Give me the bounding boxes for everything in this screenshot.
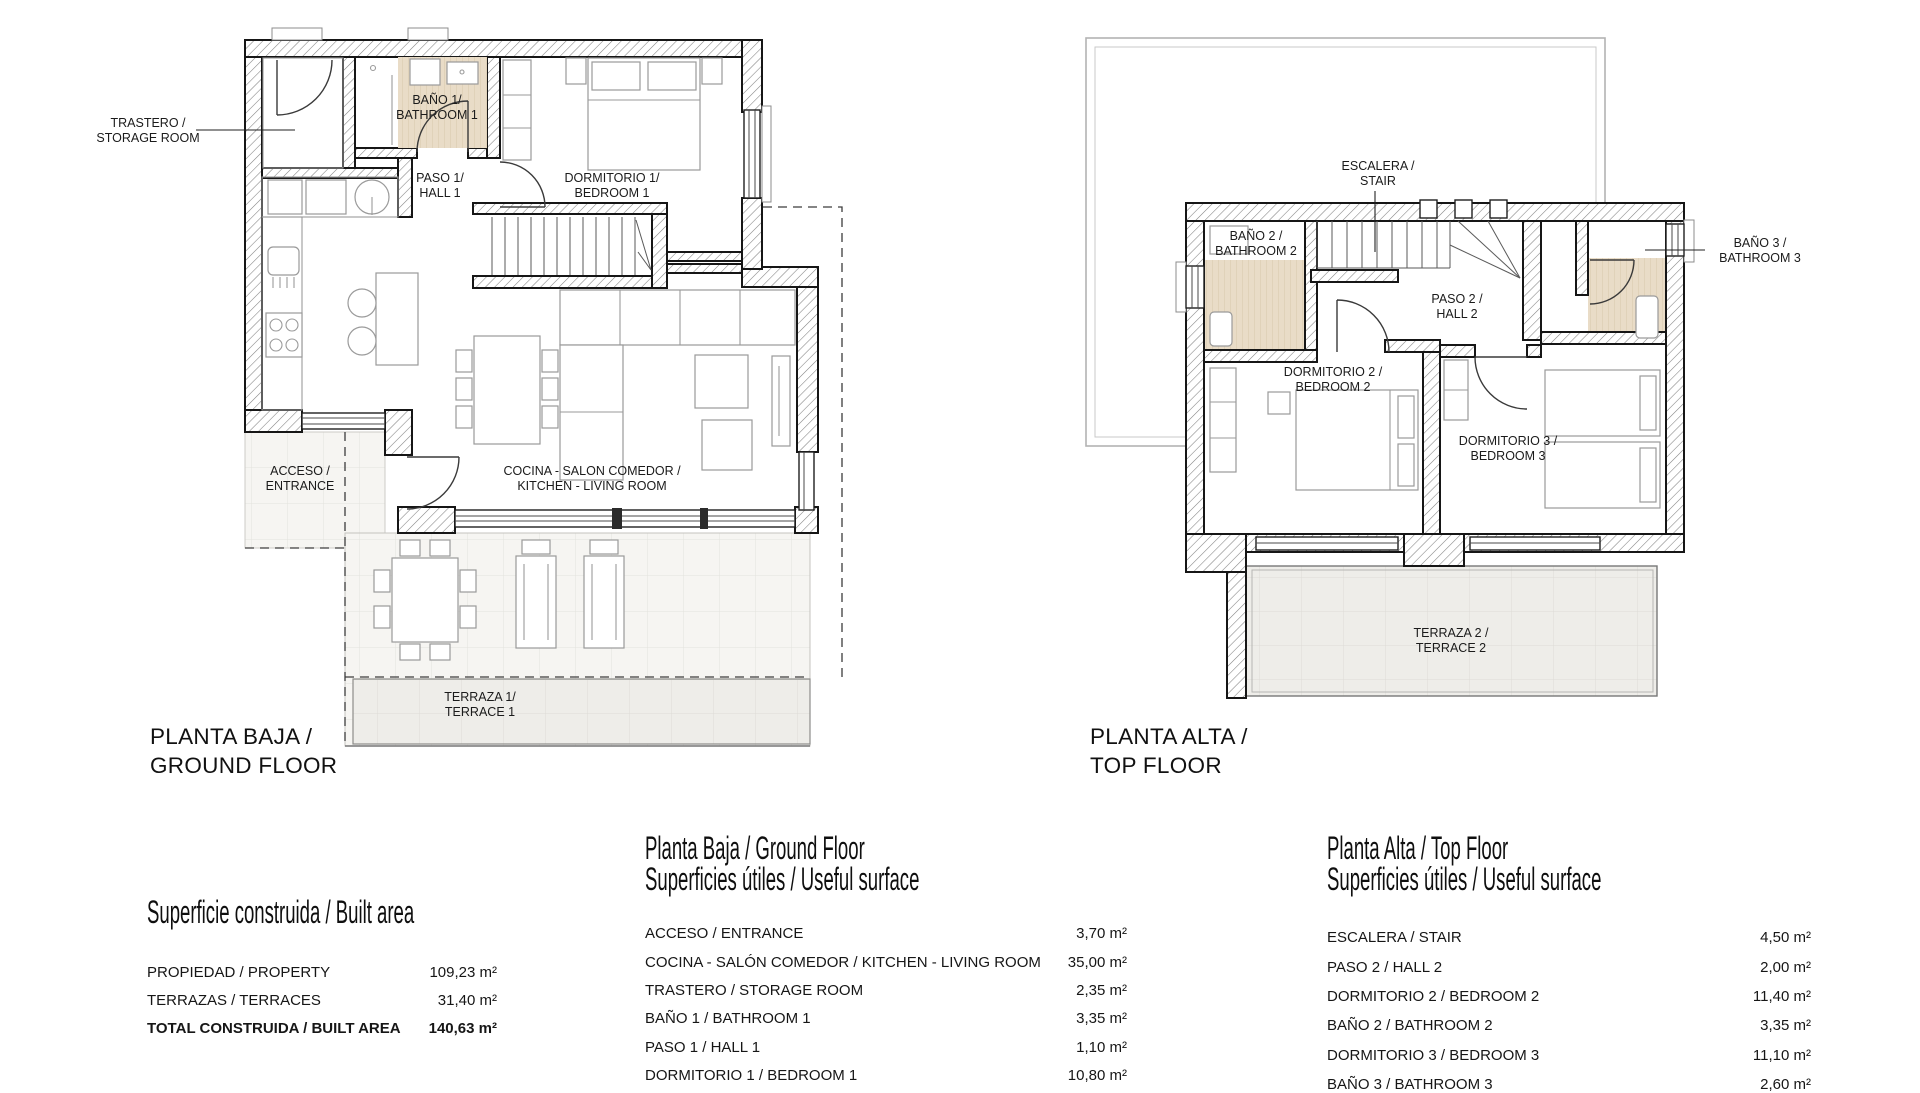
- bedroom3-label2: BEDROOM 3: [1470, 449, 1545, 463]
- table-row: DORMITORIO 1 / BEDROOM 1 10,80 m²: [645, 1067, 1127, 1084]
- stair-label: ESCALERA /: [1342, 159, 1415, 173]
- top-table-title2: Superficies útiles / Useful surface: [1327, 864, 1608, 895]
- ground-floor-title-line2: GROUND FLOOR: [150, 752, 337, 781]
- row-label: TRASTERO / STORAGE ROOM: [645, 982, 863, 999]
- row-value: 11,10 m²: [1753, 1047, 1811, 1064]
- table-row: ESCALERA / STAIR 4,50 m²: [1327, 929, 1811, 946]
- table-row: TERRAZAS / TERRACES 31,40 m²: [147, 992, 497, 1009]
- terrace2-label: TERRAZA 2 /: [1413, 626, 1489, 640]
- row-value: 3,70 m²: [1076, 925, 1127, 942]
- table-row: BAÑO 2 / BATHROOM 2 3,35 m²: [1327, 1017, 1811, 1034]
- row-value: 10,80 m²: [1068, 1067, 1127, 1084]
- top-table-title1: Planta Alta / Top Floor: [1327, 833, 1608, 864]
- row-label: DORMITORIO 3 / BEDROOM 3: [1327, 1047, 1539, 1064]
- row-label: BAÑO 1 / BATHROOM 1: [645, 1010, 811, 1027]
- terrace1-label: TERRAZA 1/: [444, 690, 516, 704]
- table-row: TRASTERO / STORAGE ROOM 2,35 m²: [645, 982, 1127, 999]
- bathroom1-label2: BATHROOM 1: [396, 108, 478, 122]
- row-value: 2,60 m²: [1760, 1076, 1811, 1093]
- terrace1-label2: TERRACE 1: [445, 705, 515, 719]
- bedroom1-label2: BEDROOM 1: [574, 186, 649, 200]
- hall1-label: PASO 1/: [416, 171, 464, 185]
- row-value: 35,00 m²: [1068, 954, 1127, 971]
- stair-label2: STAIR: [1360, 174, 1396, 188]
- hall2-label: PASO 2 /: [1431, 292, 1483, 306]
- row-value: 2,00 m²: [1760, 959, 1811, 976]
- trastero-label: TRASTERO /: [110, 116, 186, 130]
- ground-floor-plan: TRASTERO / STORAGE ROOM BAÑO 1/ BATHROOM…: [96, 28, 842, 747]
- row-label: TERRAZAS / TERRACES: [147, 992, 321, 1009]
- bathroom3-label: BAÑO 3 /: [1734, 236, 1787, 250]
- bedroom2-label2: BEDROOM 2: [1295, 380, 1370, 394]
- entrance-label2: ENTRANCE: [266, 479, 335, 493]
- ground-floor-title: PLANTA BAJA / GROUND FLOOR: [150, 723, 337, 780]
- trastero-label2: STORAGE ROOM: [96, 131, 199, 145]
- table-row: DORMITORIO 2 / BEDROOM 2 11,40 m²: [1327, 988, 1811, 1005]
- table-row: TOTAL CONSTRUIDA / BUILT AREA 140,63 m²: [147, 1020, 497, 1037]
- entrance-label: ACCESO /: [270, 464, 330, 478]
- row-value: 109,23 m²: [429, 964, 497, 981]
- row-label: DORMITORIO 2 / BEDROOM 2: [1327, 988, 1539, 1005]
- row-value: 11,40 m²: [1753, 988, 1811, 1005]
- top-floor-title: PLANTA ALTA / TOP FLOOR: [1090, 723, 1248, 780]
- top-floor-plan: ESCALERA / STAIR BAÑO 2 / BATHROOM 2 BAÑ…: [1086, 38, 1801, 698]
- hall1-label2: HALL 1: [419, 186, 460, 200]
- row-label: ACCESO / ENTRANCE: [645, 925, 803, 942]
- row-label: BAÑO 3 / BATHROOM 3: [1327, 1076, 1493, 1093]
- built-area-title: Superficie construida / Built area: [147, 897, 350, 928]
- ground-table-title1: Planta Baja / Ground Floor: [645, 833, 925, 864]
- top-floor-title-line1: PLANTA ALTA /: [1090, 723, 1248, 752]
- table-row: PROPIEDAD / PROPERTY 109,23 m²: [147, 964, 497, 981]
- row-value: 3,35 m²: [1076, 1010, 1127, 1027]
- top-floor-title-line2: TOP FLOOR: [1090, 752, 1248, 781]
- row-label: BAÑO 2 / BATHROOM 2: [1327, 1017, 1493, 1034]
- table-row: PASO 2 / HALL 2 2,00 m²: [1327, 959, 1811, 976]
- row-value: 4,50 m²: [1760, 929, 1811, 946]
- bathroom3-label2: BATHROOM 3: [1719, 251, 1801, 265]
- table-row: BAÑO 1 / BATHROOM 1 3,35 m²: [645, 1010, 1127, 1027]
- row-label: PROPIEDAD / PROPERTY: [147, 964, 330, 981]
- row-label: DORMITORIO 1 / BEDROOM 1: [645, 1067, 857, 1084]
- table-row: ACCESO / ENTRANCE 3,70 m²: [645, 925, 1127, 942]
- ground-surfaces-table: Planta Baja / Ground Floor Superficies ú…: [645, 833, 1127, 1080]
- bedroom2-label: DORMITORIO 2 /: [1284, 365, 1383, 379]
- bathroom2-label: BAÑO 2 /: [1230, 229, 1283, 243]
- ground-table-title2: Superficies útiles / Useful surface: [645, 864, 925, 895]
- table-row: PASO 1 / HALL 1 1,10 m²: [645, 1039, 1127, 1056]
- bedroom3-label: DORMITORIO 3 /: [1459, 434, 1558, 448]
- table-row: COCINA - SALÓN COMEDOR / KITCHEN - LIVIN…: [645, 954, 1127, 971]
- row-value: 2,35 m²: [1076, 982, 1127, 999]
- built-area-table: Superficie construida / Built area PROPI…: [147, 897, 497, 1080]
- ground-floor-title-line1: PLANTA BAJA /: [150, 723, 337, 752]
- row-label: ESCALERA / STAIR: [1327, 929, 1462, 946]
- bedroom1-label: DORMITORIO 1/: [565, 171, 660, 185]
- row-label: TOTAL CONSTRUIDA / BUILT AREA: [147, 1020, 401, 1037]
- table-row: DORMITORIO 3 / BEDROOM 3 11,10 m²: [1327, 1047, 1811, 1064]
- kitchen-label: COCINA - SALON COMEDOR /: [503, 464, 681, 478]
- row-value: 1,10 m²: [1076, 1039, 1127, 1056]
- row-label: PASO 1 / HALL 1: [645, 1039, 760, 1056]
- table-row: BAÑO 3 / BATHROOM 3 2,60 m²: [1327, 1076, 1811, 1093]
- bathroom2-label2: BATHROOM 2: [1215, 244, 1297, 258]
- row-label: PASO 2 / HALL 2: [1327, 959, 1442, 976]
- row-label: COCINA - SALÓN COMEDOR / KITCHEN - LIVIN…: [645, 954, 1041, 971]
- row-value: 31,40 m²: [438, 992, 497, 1009]
- kitchen-label2: KITCHEN - LIVING ROOM: [517, 479, 666, 493]
- row-value: 3,35 m²: [1760, 1017, 1811, 1034]
- row-value: 140,63 m²: [429, 1020, 497, 1037]
- top-surfaces-table: Planta Alta / Top Floor Superficies útil…: [1327, 833, 1811, 1080]
- bathroom1-label: BAÑO 1/: [412, 93, 462, 107]
- ground-stairs: [492, 217, 651, 275]
- hall2-label2: HALL 2: [1436, 307, 1477, 321]
- terrace2-label2: TERRACE 2: [1416, 641, 1486, 655]
